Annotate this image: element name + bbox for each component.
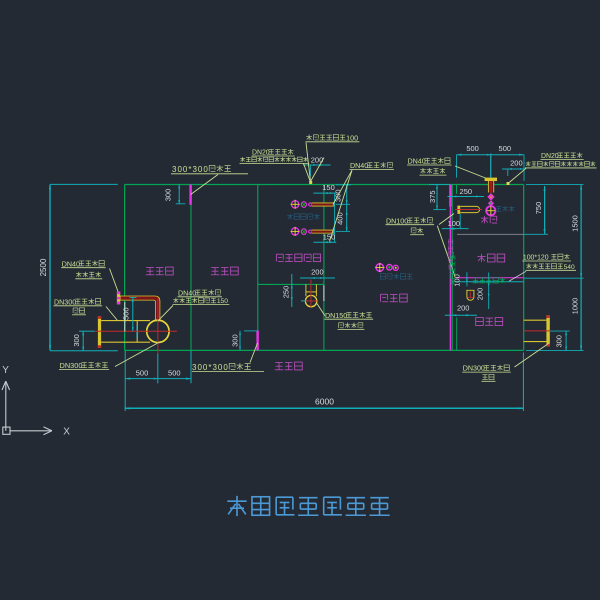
svg-text:500: 500 [466, 144, 479, 153]
svg-text:500: 500 [168, 368, 181, 377]
svg-text:DN40: DN40 [350, 162, 368, 170]
svg-text:300: 300 [72, 334, 81, 347]
svg-text:100: 100 [448, 219, 461, 228]
svg-text:250: 250 [281, 286, 290, 299]
svg-text:1000: 1000 [570, 298, 579, 315]
svg-text:DN300: DN300 [54, 298, 76, 306]
svg-text:300*300: 300*300 [172, 165, 209, 174]
svg-text:2500: 2500 [39, 258, 48, 276]
svg-text:150: 150 [323, 233, 336, 242]
svg-text:1500: 1500 [570, 215, 579, 232]
svg-text:DN150: DN150 [325, 312, 347, 320]
svg-text:500: 500 [136, 368, 149, 377]
svg-text:DN20: DN20 [541, 153, 559, 160]
svg-text:200: 200 [475, 288, 484, 301]
svg-text:DN40: DN40 [62, 260, 80, 268]
svg-text:DN40: DN40 [178, 289, 196, 297]
svg-text:DN300: DN300 [60, 361, 83, 370]
svg-text:100*120: 100*120 [523, 255, 549, 262]
svg-text:300*300: 300*300 [192, 363, 229, 372]
svg-text:DN40: DN40 [408, 158, 426, 166]
svg-text:DN20: DN20 [252, 150, 270, 157]
svg-text:200: 200 [510, 158, 523, 167]
svg-text:750: 750 [534, 202, 543, 215]
svg-text:DN300: DN300 [463, 365, 485, 373]
svg-text:150: 150 [217, 298, 228, 305]
svg-text:Y: Y [2, 365, 9, 376]
svg-text:100: 100 [346, 134, 358, 142]
svg-text:540: 540 [564, 264, 575, 271]
svg-text:300: 300 [554, 335, 563, 348]
svg-text:375: 375 [428, 190, 437, 203]
svg-text:300: 300 [163, 189, 172, 202]
svg-text:DN100: DN100 [386, 217, 408, 225]
svg-text:300: 300 [231, 334, 240, 347]
svg-text:200: 200 [457, 304, 470, 313]
svg-text:250: 250 [460, 187, 473, 196]
svg-text:6000: 6000 [315, 397, 334, 407]
svg-text:500: 500 [122, 307, 131, 320]
svg-text:200: 200 [311, 268, 324, 277]
svg-text:X: X [63, 427, 70, 438]
svg-text:500: 500 [499, 144, 512, 153]
